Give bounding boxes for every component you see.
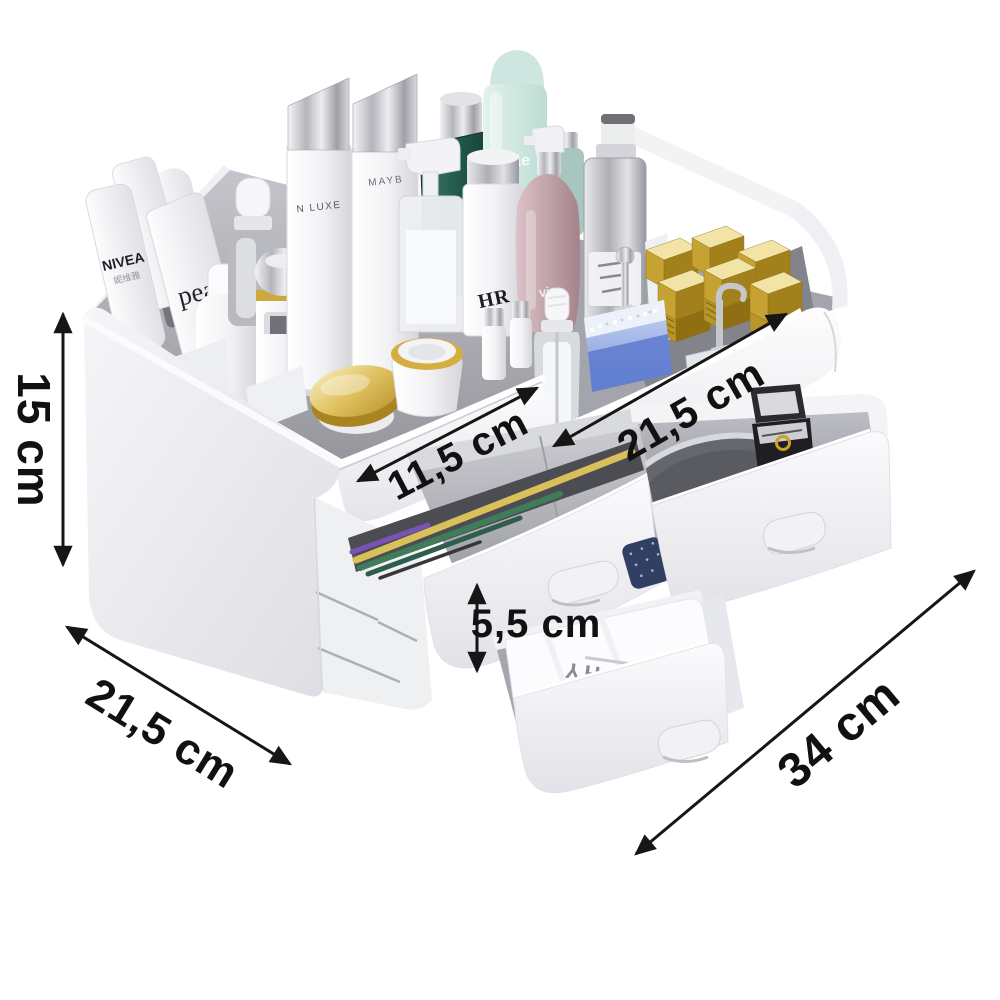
cream-jar (391, 338, 463, 417)
dim-total-width-label: 34 cm (768, 667, 910, 798)
product-dimension-photo: NIVEA 妮维雅 pea (0, 0, 1000, 1000)
bottle-n-luxe: N LUXE (287, 78, 351, 390)
lipstick (704, 258, 756, 330)
dim-height-label: 15 cm (8, 372, 60, 507)
pump-dispenser (398, 138, 463, 332)
organizer-illustration: NIVEA 妮维雅 pea (0, 0, 1000, 1000)
dim-height: 15 cm (8, 314, 63, 565)
dim-drawer-height-label: 5,5 cm (471, 602, 602, 646)
dim-depth-label: 21,5 cm (78, 669, 247, 799)
